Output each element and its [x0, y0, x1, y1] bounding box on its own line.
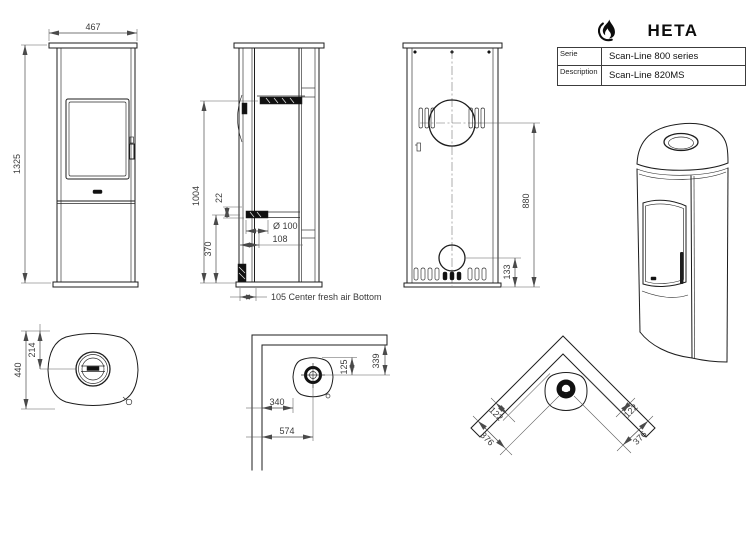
side-door-arc: [238, 95, 243, 142]
dim-side-105-note: 105 Center fresh air Bottom: [230, 288, 382, 302]
dim-label-340: 340: [269, 397, 284, 407]
front-base: [53, 282, 138, 287]
dim-label-214: 214: [27, 342, 37, 357]
side-body: [239, 48, 319, 282]
side-view: 1004 22 370 Ø 100 108: [191, 43, 382, 302]
brand-name: HETA: [647, 21, 698, 41]
corner-flue-mark: [557, 380, 576, 399]
dim-label-1004: 1004: [191, 186, 201, 206]
flame-icon: [598, 18, 619, 42]
3d-top-plate: [637, 123, 728, 170]
3d-door-handle: [680, 252, 684, 284]
spec-row-description-value: Scan-Line 820MS: [602, 66, 745, 85]
dim-label-122-left: 122: [487, 405, 505, 423]
dim-wall-340: 340: [246, 397, 293, 413]
dim-side-108: 108: [240, 232, 303, 248]
dim-side-370: 370: [203, 215, 240, 283]
spec-table: Serie Scan-Line 800 series Description S…: [557, 47, 746, 86]
front-door-glass: [66, 99, 129, 179]
side-convection-grille: [257, 96, 305, 104]
dim-label-122-right: 122: [622, 402, 640, 420]
dim-label-1325: 1325: [12, 154, 22, 174]
side-base: [236, 282, 322, 287]
3d-bottom-edge: [640, 332, 727, 362]
side-fresh-air-bottom: [238, 264, 246, 282]
front-view: 467 1325: [12, 22, 138, 287]
stove-3d-view: [637, 123, 728, 362]
back-body: [407, 48, 498, 283]
side-door-handle: [242, 103, 247, 114]
side-top-plate: [234, 43, 324, 48]
dim-corner-right: 122 376: [574, 374, 653, 454]
dim-label-108: 108: [272, 234, 287, 244]
dim-label-440: 440: [13, 362, 23, 377]
dim-label-22: 22: [214, 193, 224, 203]
top-view-plan: 440 214: [13, 324, 138, 409]
back-bottom-vents: [414, 268, 486, 280]
front-brand-badge: [93, 190, 102, 194]
dim-front-height: 1325: [12, 45, 51, 283]
3d-door-seam: [691, 176, 692, 358]
dim-front-width: 467: [49, 22, 137, 41]
dim-wall-125: 125: [322, 358, 357, 376]
technical-drawing-sheet: 467 1325: [0, 0, 750, 537]
dim-wall-339: 339: [325, 345, 390, 375]
dim-label-467: 467: [85, 22, 100, 32]
corner-placement-view: 122 376 122 376: [471, 336, 655, 455]
back-base: [404, 283, 501, 287]
spec-row-description-label: Description: [558, 66, 602, 85]
dim-label-370: 370: [203, 241, 213, 256]
side-fresh-air-pipe: [246, 211, 300, 218]
dim-label-376-right: 376: [631, 429, 649, 447]
spec-row-serie-label: Serie: [558, 48, 602, 66]
dim-corner-left: 122 376: [473, 374, 559, 456]
dim-label-574: 574: [279, 426, 294, 436]
dim-label-125: 125: [339, 359, 349, 374]
3d-right-edge: [727, 168, 728, 362]
wall-placement-view: 125 339 340 574: [246, 335, 390, 470]
top-damper-knob: [87, 367, 99, 371]
dim-back-880: 880: [477, 123, 540, 287]
front-top-plate: [49, 43, 137, 48]
3d-brand-badge: [651, 277, 656, 280]
top-handle-end: [126, 399, 132, 405]
side-fresh-air-note: 105 Center fresh air Bottom: [271, 292, 382, 302]
dim-wall-574: 574: [246, 384, 313, 441]
3d-door-glass: [643, 200, 686, 286]
heta-logo: HETA: [598, 18, 748, 44]
dim-label-133: 133: [502, 264, 512, 279]
dim-label-880: 880: [521, 193, 531, 208]
dim-side-1004: 1004: [191, 101, 258, 283]
dim-label-d100: Ø 100: [273, 221, 298, 231]
dim-label-376-left: 376: [478, 430, 496, 448]
back-top-plate: [403, 43, 502, 48]
front-door-handle: [130, 137, 134, 143]
dim-side-diameter: Ø 100: [246, 220, 298, 234]
spec-row-serie-value: Scan-Line 800 series: [602, 48, 745, 66]
3d-flue-collar: [664, 134, 698, 151]
3d-left-edge: [637, 169, 640, 332]
dim-label-339: 339: [371, 353, 381, 368]
back-view: 880 133: [403, 43, 540, 287]
back-cable-bracket: [415, 143, 421, 151]
wall-stove-handle: [326, 394, 330, 398]
